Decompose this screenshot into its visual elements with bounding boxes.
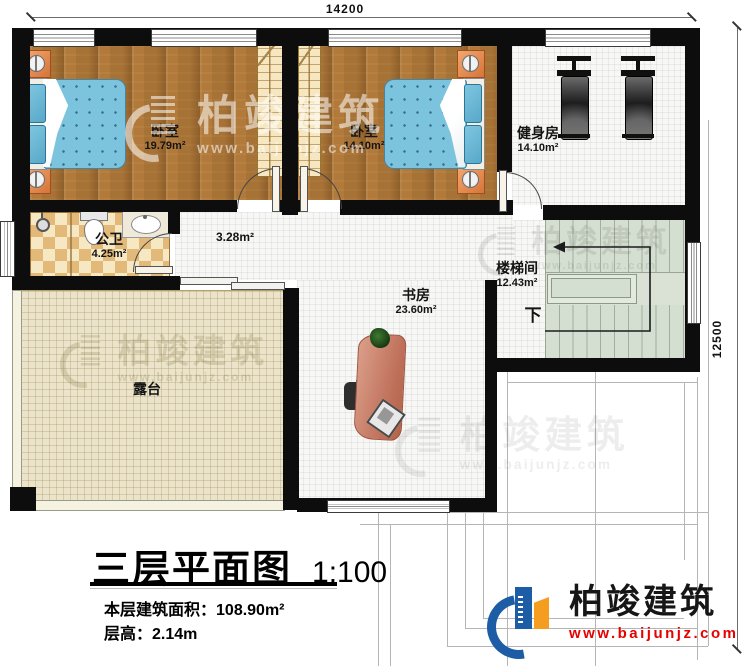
floor-area-label: 本层建筑面积： [104,602,216,619]
room-label-bathroom: 公卫 4.25m² [92,232,127,260]
pillow [464,125,482,164]
title-underline-shadow [90,588,337,589]
sliding-door-panel [180,277,238,285]
treadmill-base [558,134,590,138]
roof-line [507,382,697,383]
window [327,500,450,513]
window [151,29,257,47]
company-name: 柏竣建筑 [569,585,738,619]
wall [485,280,497,512]
wall [490,358,700,372]
floorplan-page: 卧室 19.79m² 卧室 14.10m² 健身房 14.10m² 公卫 4.2… [0,0,750,666]
roof-line [447,512,448,646]
room-label-gym: 健身房 14.10m² [517,126,559,154]
desk-plant [370,328,390,348]
roof-line [684,382,685,560]
floor-area-line: 本层建筑面积：108.90m² [104,596,285,620]
room-area: 23.60m² [396,304,437,316]
window [0,221,15,277]
wall [277,200,300,212]
nightstand [457,166,485,194]
sink-faucet [143,215,147,219]
wall [168,212,180,234]
wall [283,288,299,510]
stairs-direction-path [497,220,685,365]
pillow [464,84,482,123]
stairs-down-label: 下 [525,306,542,325]
logo-building-blue [515,587,532,629]
floor-height-label: 层高： [104,626,152,643]
wall [543,205,685,220]
wall [497,28,512,172]
wall [12,200,237,212]
treadmill-base [622,134,654,138]
room-name: 卧室 [145,124,186,140]
window [33,29,95,47]
door-leaf [135,266,173,274]
treadmill-stem [636,58,640,76]
dimension-width: 14200 [326,2,364,16]
treadmill-deck [561,76,589,140]
room-name: 书房 [396,288,437,304]
window [328,29,462,47]
room-label-hallway: 3.28m² [216,231,254,244]
wall [282,28,298,215]
terrace-railing-bottom [12,500,285,511]
window [687,242,701,324]
door-leaf [272,166,280,212]
room-label-bedroom-left: 卧室 19.79m² [145,124,186,152]
shower-partition [70,212,72,276]
room-name: 楼梯间 [496,261,538,277]
window [545,29,651,47]
title-underline [90,582,337,586]
company-logo-icon [487,585,557,649]
treadmill-deck [625,76,653,140]
room-label-stairwell: 楼梯间 12.43m² [496,261,538,289]
company-logo: 柏竣建筑 www.baijunjz.com [487,585,738,649]
room-area: 4.25m² [92,248,127,260]
sliding-door-panel [231,282,285,290]
room-name: 公卫 [92,232,127,248]
roof-line [708,120,709,646]
room-name: 卧室 [344,124,385,140]
dimension-line-top [30,17,692,18]
wardrobe [257,35,283,177]
treadmill-stem [572,58,576,76]
wardrobe [298,35,321,177]
roof-line [390,524,391,666]
terrace-corner-pillar [10,487,36,511]
roof-line [483,512,484,618]
room-label-study: 书房 23.60m² [396,288,437,316]
dimension-height: 12500 [710,314,724,364]
terrace-railing-left [12,290,22,504]
room-label-terrace: 露台 [133,382,161,398]
wall [340,200,513,215]
room-area: 14.10m² [517,142,559,154]
roof-line [465,512,466,628]
nightstand [457,50,485,78]
floor-area-value: 108.90m² [216,602,285,619]
room-area: 14.10m² [344,140,385,152]
room-area: 19.79m² [145,140,186,152]
door-leaf [300,166,308,212]
door-leaf [499,170,507,212]
roof-line [360,524,697,525]
room-name: 健身房 [517,126,559,142]
company-website: www.baijunjz.com [569,625,738,642]
floor-height-value: 2.14m [152,626,197,643]
room-name: 露台 [133,382,161,398]
pillow [28,84,46,123]
room-area: 3.28m² [216,231,254,244]
wall [12,276,180,290]
hallway-floor [175,212,513,280]
direction-text: 下 [525,306,542,325]
dimension-line-right [737,26,738,650]
room-label-bedroom-right: 卧室 14.10m² [344,124,385,152]
floor-height-line: 层高：2.14m [104,620,197,644]
pillow [28,125,46,164]
shower-head [36,218,50,232]
room-area: 12.43m² [496,277,538,289]
